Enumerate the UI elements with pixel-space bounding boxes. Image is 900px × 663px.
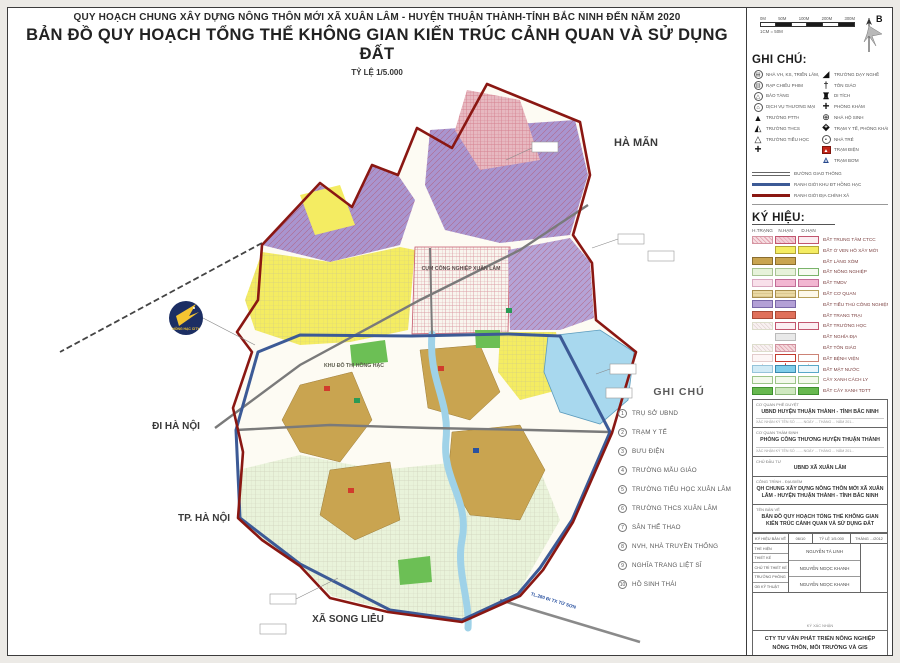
theater-icon: ▤ bbox=[752, 69, 764, 79]
line-legend-item: RANH GIỚI ĐỊA CHÍNH XÃ bbox=[752, 190, 888, 201]
line-legend-label: RANH GIỚI KHU ĐT HỒNG HẠC bbox=[794, 182, 861, 187]
title-block-box-value: BẢN ĐỒ QUY HOẠCH TỔNG THỂ KHÔNG GIAN KIẾ… bbox=[756, 514, 884, 530]
label-ha-man: HÀ MÃN bbox=[614, 136, 658, 149]
swatch-purple bbox=[752, 300, 773, 308]
swatch-salmon bbox=[775, 311, 796, 319]
note-number-badge: 5 bbox=[618, 485, 627, 494]
legend-item: ◭TRƯỜNG THCS bbox=[752, 123, 820, 134]
swatch-tree bbox=[752, 376, 773, 384]
symbol-row: ĐẤT TRUNG TÂM CTCC bbox=[752, 234, 888, 245]
swatch-cross-outline bbox=[798, 354, 819, 362]
title-block: CƠ QUAN PHÊ DUYỆTUBND HUYỆN THUẬN THÀNH … bbox=[752, 399, 888, 655]
title-block-box-label: CHỦ ĐẦU TƯ bbox=[756, 459, 884, 464]
swatch-pink bbox=[775, 279, 796, 287]
note-number-badge: 3 bbox=[618, 447, 627, 456]
swatch-gray bbox=[775, 333, 796, 341]
line-sample bbox=[752, 183, 790, 186]
signature-table: THỂ HIỆNTHIẾT KẾCHỦ TRÌ THIẾT KẾTRƯỞNG P… bbox=[752, 543, 888, 592]
divider bbox=[752, 204, 888, 205]
legend-item: ▲TRƯỜNG PTTH bbox=[752, 112, 820, 123]
symbol-row: ĐẤT LÀNG XÓM bbox=[752, 256, 888, 267]
swatch-yellow bbox=[798, 246, 819, 254]
note-label: TRƯỜNG THCS XUÂN LÂM bbox=[632, 505, 717, 512]
line-sample bbox=[752, 172, 790, 176]
note-label: TRƯỜNG TIỂU HỌC XUÂN LÂM bbox=[632, 486, 731, 493]
legend-item-label: NHÀ VH, KS, TRIỂN LÃM, NHÀ HÁT bbox=[766, 72, 820, 77]
swatch-empty bbox=[798, 333, 819, 341]
legend-column-left: ▤NHÀ VH, KS, TRIỂN LÃM, NHÀ HÁT▥RẠP CHIẾ… bbox=[752, 69, 820, 166]
commerce-icon: ⌂ bbox=[754, 103, 763, 112]
legend-column-right: ◢TRƯỜNG DẠY NGHỀ†TÔN GIÁO♜DI TÍCH+PHÒNG … bbox=[820, 69, 888, 166]
note-label: HỒ SINH THÁI bbox=[632, 581, 677, 588]
plus-icon: + bbox=[752, 145, 764, 154]
power-station-icon: ▲ bbox=[822, 146, 831, 154]
symbol-label: ĐẤT NÔNG NGHIỆP bbox=[823, 269, 867, 274]
symbols-table: ĐẤT TRUNG TÂM CTCCĐẤT Ở VEN HỒ XÂY MỚIĐẤ… bbox=[752, 234, 888, 396]
note-label: NGHĨA TRANG LIỆT SĨ bbox=[632, 562, 702, 569]
swatch-cross-faint bbox=[752, 354, 773, 362]
symbol-label: ĐẤT NGHĨA ĐỊA bbox=[823, 334, 857, 339]
pump-station-icon: ▲ bbox=[820, 156, 832, 166]
symbol-label: ĐẤT BỆNH VIỆN bbox=[823, 356, 859, 361]
swatch-blue bbox=[775, 365, 796, 373]
note-number-badge: 6 bbox=[618, 504, 627, 513]
label-di-ha-noi: ĐI HÀ NỘI bbox=[152, 419, 200, 432]
facility-marker bbox=[324, 386, 330, 391]
swatch-pink-outline bbox=[798, 236, 819, 244]
symbol-label: ĐẤT Ở VEN HỒ XÂY MỚI bbox=[823, 248, 878, 253]
symbol-label: ĐẤT CÂY XANH TDTT bbox=[823, 388, 871, 393]
legend-panel: 0M50M100M200M300M 1CM = 50M B GHI CHÚ: ▤… bbox=[746, 8, 892, 655]
vocational-icon: ◢ bbox=[820, 69, 832, 79]
symbols-column-headers: H.TRẠNGN.HẠND.HẠN bbox=[752, 228, 888, 233]
symbol-row: CÂY XANH CÁCH LY bbox=[752, 375, 888, 386]
label-xa-song-lieu: XÃ SONG LIỄU bbox=[312, 612, 384, 625]
swatch-hatch-faint bbox=[752, 344, 773, 352]
signature-names: NGUYỄN TÁ LINHNGUYỄN NGỌC KHANHNGUYỄN NG… bbox=[789, 544, 861, 592]
health-station-icon: ◆ bbox=[820, 123, 832, 133]
swatch-pink-pale bbox=[752, 279, 773, 287]
title-block-box-label: TÊN BẢN VẼ bbox=[756, 507, 884, 512]
legend-item-label: NHÀ HỘ SINH bbox=[834, 115, 864, 120]
scalebar-tick-label: 0M bbox=[760, 16, 766, 21]
commerce-icon: ⌂ bbox=[752, 102, 764, 112]
swatch-tan bbox=[775, 257, 796, 265]
note-label: NVH, NHÀ TRUYỀN THỐNG bbox=[632, 543, 718, 550]
swatch-pink-outline bbox=[775, 322, 796, 330]
map-note-item: 10HỒ SINH THÁI bbox=[618, 575, 740, 594]
title-block-box-label: CÔNG TRÌNH - ĐỊA ĐIỂM bbox=[756, 479, 884, 484]
legend-item-label: TRƯỜNG THCS bbox=[766, 126, 800, 131]
legend-item-label: NHÀ TRẺ bbox=[834, 137, 854, 142]
kindergarten-icon: ▪ bbox=[820, 134, 832, 144]
swatch-tree bbox=[775, 376, 796, 384]
legend-item: △TRƯỜNG TIỂU HỌC bbox=[752, 134, 820, 145]
zone-green-park bbox=[398, 556, 432, 585]
legend-item: ▲TRẠM BƠM bbox=[820, 155, 888, 166]
note-number-badge: 10 bbox=[618, 580, 627, 589]
swatch-empty bbox=[798, 311, 819, 319]
map-note-item: 1TRỤ SỞ UBND bbox=[618, 404, 740, 423]
legend-item-label: TRẠM BƠM bbox=[834, 158, 859, 163]
symbol-row: ĐẤT NÔNG NGHIỆP bbox=[752, 267, 888, 278]
swatch-green-pale bbox=[752, 268, 773, 276]
note-number-badge: 7 bbox=[618, 523, 627, 532]
legend-item: ♜DI TÍCH bbox=[820, 91, 888, 102]
line-legend-label: RANH GIỚI ĐỊA CHÍNH XÃ bbox=[794, 193, 849, 198]
cinema-icon: ▥ bbox=[752, 80, 764, 90]
symbols-column-header: H.TRẠNG bbox=[752, 228, 773, 233]
line-legend-item: RANH GIỚI KHU ĐT HỒNG HẠC bbox=[752, 179, 888, 190]
signature-name: NGUYỄN TÁ LINH bbox=[789, 544, 860, 560]
note-label: BƯU ĐIỆN bbox=[632, 448, 665, 455]
map-note-item: 3BƯU ĐIỆN bbox=[618, 442, 740, 461]
swatch-blue-pale bbox=[752, 365, 773, 373]
map-header: QUY HOẠCH CHUNG XÂY DỰNG NÔNG THÔN MỚI X… bbox=[8, 12, 746, 77]
note-number-badge: 9 bbox=[618, 561, 627, 570]
logo-text: HỒNG HẠC CITY bbox=[172, 326, 200, 331]
legend-item-label: PHÒNG KHÁM bbox=[834, 104, 865, 109]
signature-role: TRƯỞNG PHÒNG bbox=[753, 573, 788, 583]
swatch-tan-hatch bbox=[752, 290, 773, 298]
swatch-empty bbox=[798, 344, 819, 352]
map-note-item: 5TRƯỜNG TIỂU HỌC XUÂN LÂM bbox=[618, 480, 740, 499]
symbol-label: ĐẤT TIỂU THỦ CÔNG NGHIỆP bbox=[823, 302, 888, 307]
planning-map-sheet: QUY HOẠCH CHUNG XÂY DỰNG NÔNG THÔN MỚI X… bbox=[0, 0, 900, 663]
symbol-label: ĐẤT TRUNG TÂM CTCC bbox=[823, 237, 876, 242]
title-block-box-value: UBND HUYỆN THUẬN THÀNH - TỈNH BẮC NINH bbox=[756, 409, 884, 417]
sheet-frame: QUY HOẠCH CHUNG XÂY DỰNG NÔNG THÔN MỚI X… bbox=[7, 7, 893, 656]
legend-item-label: DỊCH VỤ THƯƠNG MẠI bbox=[766, 104, 815, 109]
symbol-row: ĐẤT TRANG TRẠI bbox=[752, 310, 888, 321]
swatch-tree bbox=[798, 376, 819, 384]
legend-item-label: DI TÍCH bbox=[834, 93, 850, 98]
scalebar: 0M50M100M200M300M 1CM = 50M bbox=[760, 16, 855, 34]
note-label: TRƯỜNG MẪU GIÁO bbox=[632, 467, 697, 474]
symbols-column-header: D.HẠN bbox=[798, 228, 819, 233]
secondary-school-icon: ◭ bbox=[752, 123, 764, 133]
scalebar-bar bbox=[760, 22, 855, 27]
symbol-row: ĐẤT TRƯỜNG HỌC bbox=[752, 321, 888, 332]
title-block-box-note: XÁC NHẬN KÝ TÊN SỐ ....... NGÀY ... THÁN… bbox=[756, 447, 884, 453]
legend-item: ⊕NHÀ HỘ SINH bbox=[820, 112, 888, 123]
railway bbox=[60, 243, 262, 352]
signature-role: CHỦ TRÌ THIẾT KẾ bbox=[753, 563, 788, 573]
drawing-scale: TỶ LỆ 1/5.000 bbox=[813, 534, 851, 543]
swatch-tan bbox=[752, 257, 773, 265]
symbol-label: ĐẤT MẶT NƯỚC bbox=[823, 367, 860, 372]
swatch-empty bbox=[752, 333, 773, 341]
swatch-pink-border bbox=[775, 236, 796, 244]
swatch-green-outline bbox=[798, 268, 819, 276]
symbol-row: ĐẤT Ở VEN HỒ XÂY MỚI bbox=[752, 245, 888, 256]
scalebar-block: 0M50M100M200M300M 1CM = 50M B bbox=[752, 12, 888, 52]
facility-marker bbox=[354, 398, 360, 403]
label-tl280: TL.280 ĐI TX TỪ SƠN bbox=[530, 590, 577, 610]
swatch-hatch-faint bbox=[752, 322, 773, 330]
legend-item: ◢TRƯỜNG DẠY NGHỀ bbox=[820, 69, 888, 80]
symbol-row: ĐẤT NGHĨA ĐỊA bbox=[752, 331, 888, 342]
clinic-icon: + bbox=[820, 102, 832, 111]
scalebar-labels: 0M50M100M200M300M bbox=[760, 16, 855, 21]
swatch-salmon bbox=[752, 311, 773, 319]
museum-icon: △ bbox=[752, 91, 764, 101]
symbols-title: KÝ HIỆU: bbox=[752, 212, 835, 225]
swatch-empty bbox=[798, 300, 819, 308]
swatch-cross-red bbox=[775, 354, 796, 362]
legend-item-label: TRƯỜNG DẠY NGHỀ bbox=[834, 72, 879, 77]
label-tp-ha-noi: TP. HÀ NỘI bbox=[178, 511, 230, 524]
legend-title: GHI CHÚ: bbox=[752, 54, 888, 66]
drawing-code: 06/10 bbox=[789, 534, 813, 543]
symbol-label: ĐẤT CƠ QUAN bbox=[823, 291, 856, 296]
title-block-box: CÔNG TRÌNH - ĐỊA ĐIỂMQH CHUNG XÂY DỰNG N… bbox=[752, 476, 888, 504]
note-number-badge: 2 bbox=[618, 428, 627, 437]
title-block-box-label: CƠ QUAN THẨM ĐỊNH bbox=[756, 430, 884, 435]
symbol-row: ĐẤT TIỂU THỦ CÔNG NGHIỆP bbox=[752, 299, 888, 310]
drawing-date: THÁNG .../2012 bbox=[851, 534, 887, 543]
note-number-badge: 1 bbox=[618, 409, 627, 418]
title-block-box: CƠ QUAN THẨM ĐỊNHPHÒNG CÔNG THƯƠNG HUYỆN… bbox=[752, 427, 888, 455]
legend-item: + bbox=[752, 145, 820, 156]
symbol-row: ĐẤT TÔN GIÁO bbox=[752, 342, 888, 353]
zone-green-park bbox=[475, 330, 500, 348]
title-block-box-value: UBND XÃ XUÂN LÂM bbox=[756, 465, 884, 473]
legend-item: ▤NHÀ VH, KS, TRIỂN LÃM, NHÀ HÁT bbox=[752, 69, 820, 80]
legend-item-label: BẢO TÀNG bbox=[766, 93, 789, 98]
map-notes-list: 1TRỤ SỞ UBND2TRẠM Y TẾ3BƯU ĐIỆN4TRƯỜNG M… bbox=[618, 404, 740, 594]
swatch-pink bbox=[798, 279, 819, 287]
swatch-tan-hatch bbox=[775, 290, 796, 298]
legend-item: †TÔN GIÁO bbox=[820, 80, 888, 91]
legend-item-label: TRẠM Y TẾ, PHÒNG KHÁM ĐK bbox=[834, 126, 888, 131]
map-notes-title: GHI CHÚ bbox=[618, 386, 740, 398]
map-notes: GHI CHÚ 1TRỤ SỞ UBND2TRẠM Y TẾ3BƯU ĐIỆN4… bbox=[618, 386, 740, 594]
signature-role: THIẾT KẾ bbox=[753, 554, 788, 564]
symbol-label: CÂY XANH CÁCH LY bbox=[823, 377, 868, 382]
cinema-icon: ▥ bbox=[754, 81, 763, 90]
note-number-badge: 4 bbox=[618, 466, 627, 475]
facility-marker bbox=[506, 308, 512, 313]
scalebar-tick-label: 200M bbox=[822, 16, 832, 21]
legend-icon-grid: ▤NHÀ VH, KS, TRIỂN LÃM, NHÀ HÁT▥RẠP CHIẾ… bbox=[752, 69, 888, 166]
compass-north-label: B bbox=[876, 14, 883, 24]
map-panel: QUY HOẠCH CHUNG XÂY DỰNG NÔNG THÔN MỚI X… bbox=[8, 8, 746, 655]
facility-marker bbox=[438, 366, 444, 371]
symbols-column-header: N.HẠN bbox=[775, 228, 796, 233]
legend-lines: ĐƯỜNG GIAO THÔNGRANH GIỚI KHU ĐT HỒNG HẠ… bbox=[752, 168, 888, 201]
museum-icon: △ bbox=[754, 92, 763, 101]
map-title-line2: BẢN ĐỒ QUY HOẠCH TỔNG THỂ KHÔNG GIAN KIẾ… bbox=[8, 26, 746, 64]
map-note-item: 7SÂN THỂ THAO bbox=[618, 518, 740, 537]
note-label: SÂN THỂ THAO bbox=[632, 524, 681, 531]
line-legend-label: ĐƯỜNG GIAO THÔNG bbox=[794, 171, 842, 176]
symbol-row: ĐẤT CƠ QUAN bbox=[752, 288, 888, 299]
label-urban-area: KHU ĐÔ THỊ HỒNG HẠC bbox=[324, 361, 384, 369]
title-block-box: TÊN BẢN VẼBẢN ĐỒ QUY HOẠCH TỔNG THỂ KHÔN… bbox=[752, 504, 888, 533]
symbol-label: ĐẤT TRANG TRẠI bbox=[823, 313, 862, 318]
facility-marker bbox=[348, 488, 354, 493]
legend-item: ▲TRẠM ĐIỆN bbox=[820, 145, 888, 156]
legend-item: ▪NHÀ TRẺ bbox=[820, 134, 888, 145]
title-block-box: CƠ QUAN PHÊ DUYỆTUBND HUYỆN THUẬN THÀNH … bbox=[752, 399, 888, 427]
swatch-empty bbox=[798, 257, 819, 265]
drawing-info-row: KÝ HIỆU BẢN VẼ 06/10 TỶ LỆ 1/5.000 THÁNG… bbox=[752, 533, 888, 543]
symbol-row: ĐẤT CÂY XANH TDTT bbox=[752, 385, 888, 396]
note-label: TRỤ SỞ UBND bbox=[632, 410, 678, 417]
swatch-pink-hatch bbox=[775, 344, 796, 352]
swatch-green bbox=[752, 387, 773, 395]
symbol-label: ĐẤT LÀNG XÓM bbox=[823, 259, 858, 264]
title-block-box-value: QH CHUNG XÂY DỰNG NÔNG THÔN MỚI XÃ XUÂN … bbox=[756, 486, 884, 502]
maternity-icon: ⊕ bbox=[820, 113, 832, 122]
scalebar-tick-label: 300M bbox=[845, 16, 855, 21]
map-title-line1: QUY HOẠCH CHUNG XÂY DỰNG NÔNG THÔN MỚI X… bbox=[8, 12, 746, 23]
line-legend-item: ĐƯỜNG GIAO THÔNG bbox=[752, 168, 888, 179]
map-scale-label: TỶ LỆ 1/5.000 bbox=[8, 68, 746, 77]
stamp-label: KÝ XÁC NHẬN bbox=[753, 623, 887, 628]
scalebar-tick-label: 100M bbox=[799, 16, 809, 21]
label-industrial-cluster: CỤM CÔNG NGHIỆP XUÂN LÂM bbox=[422, 264, 501, 272]
title-block-box: CHỦ ĐẦU TƯUBND XÃ XUÂN LÂM bbox=[752, 456, 888, 476]
title-block-box-note: XÁC NHẬN KÝ TÊN SỐ ....... NGÀY ... THÁN… bbox=[756, 418, 884, 424]
signature-name: NGUYỄN NGỌC KHANH bbox=[789, 561, 860, 577]
title-block-box-value: PHÒNG CÔNG THƯƠNG HUYỆN THUẬN THÀNH bbox=[756, 437, 884, 445]
swatch-green-pale bbox=[775, 268, 796, 276]
compass-icon: B bbox=[856, 12, 886, 54]
zone-industrial-cluster-grid bbox=[412, 247, 510, 334]
map-note-item: 4TRƯỜNG MẪU GIÁO bbox=[618, 461, 740, 480]
legend-item: ⌂DỊCH VỤ THƯƠNG MẠI bbox=[752, 101, 820, 112]
swatch-hatch-pink bbox=[752, 236, 773, 244]
signature-role: GĐ KỸ THUẬT bbox=[753, 583, 788, 593]
swatch-green bbox=[798, 387, 819, 395]
legend-item: △BẢO TÀNG bbox=[752, 91, 820, 102]
title-block-box-label: CƠ QUAN PHÊ DUYỆT bbox=[756, 402, 884, 407]
swatch-green-pale2 bbox=[775, 387, 796, 395]
signature-roles: THỂ HIỆNTHIẾT KẾCHỦ TRÌ THIẾT KẾTRƯỞNG P… bbox=[753, 544, 789, 592]
swatch-empty bbox=[752, 246, 773, 254]
signature-blank-column bbox=[861, 544, 887, 592]
scalebar-ratio: 1CM = 50M bbox=[760, 29, 855, 34]
swatch-blue-outline bbox=[798, 365, 819, 373]
swatch-yellow bbox=[775, 246, 796, 254]
zone-industry-east-hatch bbox=[508, 238, 594, 330]
symbol-label: ĐẤT TMDV bbox=[823, 280, 847, 285]
swatch-pink-outline bbox=[798, 322, 819, 330]
facility-marker bbox=[473, 448, 479, 453]
swatch-tan-outline bbox=[798, 290, 819, 298]
map-note-item: 8NVH, NHÀ TRUYỀN THỐNG bbox=[618, 537, 740, 556]
note-number-badge: 8 bbox=[618, 542, 627, 551]
legend-item: ▥RẠP CHIẾU PHIM bbox=[752, 80, 820, 91]
legend-item: +PHÒNG KHÁM bbox=[820, 101, 888, 112]
stamp-box: KÝ XÁC NHẬN bbox=[752, 592, 888, 630]
company-name: CTY TƯ VẤN PHÁT TRIỂN NÔNG NGHIỆP NÔNG T… bbox=[752, 630, 888, 655]
legend-item-label: RẠP CHIẾU PHIM bbox=[766, 83, 803, 88]
map-note-item: 6TRƯỜNG THCS XUÂN LÂM bbox=[618, 499, 740, 518]
symbol-row: ĐẤT BỆNH VIỆN bbox=[752, 353, 888, 364]
legend-item-label: TRƯỜNG TIỂU HỌC bbox=[766, 137, 809, 142]
theater-icon: ▤ bbox=[754, 70, 763, 79]
drawing-code-label: KÝ HIỆU BẢN VẼ bbox=[753, 534, 789, 543]
kindergarten-icon: ▪ bbox=[822, 135, 831, 144]
symbol-label: ĐẤT TRƯỜNG HỌC bbox=[823, 323, 867, 328]
power-station-icon: ▲ bbox=[820, 145, 832, 155]
symbol-row: ĐẤT MẶT NƯỚC bbox=[752, 364, 888, 375]
highschool-icon: ▲ bbox=[752, 113, 764, 123]
legend-item: ◆TRẠM Y TẾ, PHÒNG KHÁM ĐK bbox=[820, 123, 888, 134]
signature-name: NGUYỄN NGỌC KHANH bbox=[789, 577, 860, 592]
symbol-label: ĐẤT TÔN GIÁO bbox=[823, 345, 856, 350]
swatch-purple bbox=[775, 300, 796, 308]
map-note-item: 9NGHĨA TRANG LIỆT SĨ bbox=[618, 556, 740, 575]
legend-item-label: TRẠM ĐIỆN bbox=[834, 147, 859, 152]
symbol-row: ĐẤT TMDV bbox=[752, 277, 888, 288]
scalebar-tick-label: 50M bbox=[778, 16, 786, 21]
line-sample bbox=[752, 194, 790, 197]
signature-role: THỂ HIỆN bbox=[753, 544, 788, 554]
note-label: TRẠM Y TẾ bbox=[632, 429, 667, 436]
legend-item-label: TÔN GIÁO bbox=[834, 83, 856, 88]
legend-item-label: TRƯỜNG PTTH bbox=[766, 115, 799, 120]
title-block-boxes: CƠ QUAN PHÊ DUYỆTUBND HUYỆN THUẬN THÀNH … bbox=[752, 399, 888, 533]
religion-icon: † bbox=[820, 80, 832, 90]
map-note-item: 2TRẠM Y TẾ bbox=[618, 423, 740, 442]
